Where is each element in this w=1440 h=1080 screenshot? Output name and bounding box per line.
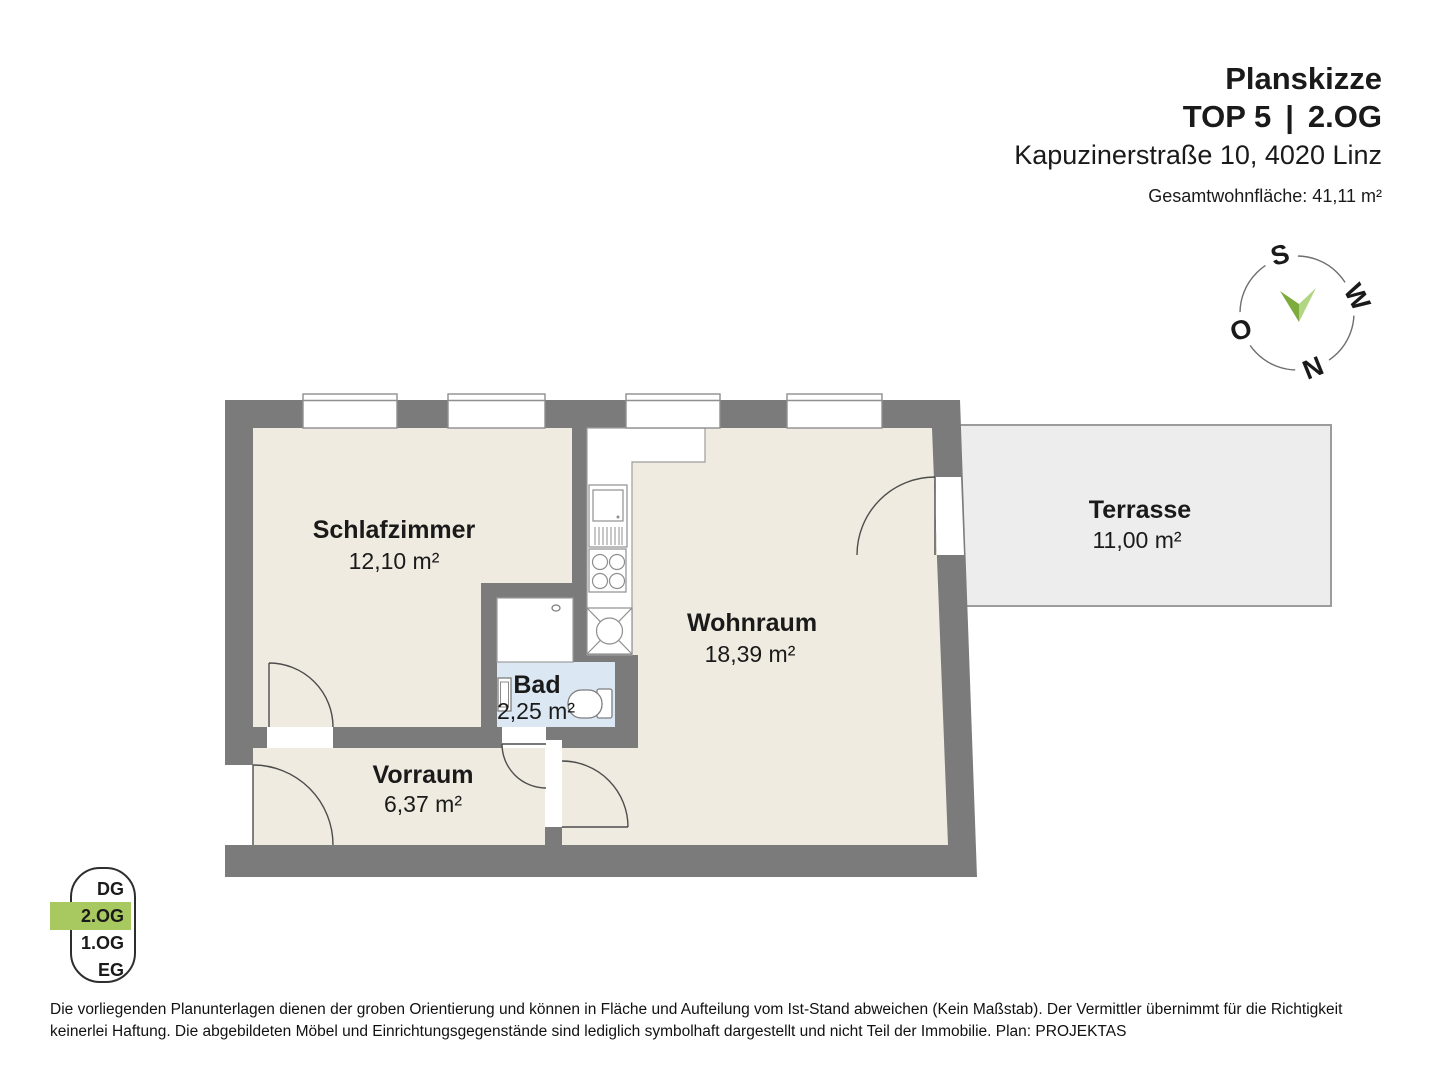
vorraum-area: 6,37 m² (384, 791, 462, 817)
sink-icon (587, 608, 632, 654)
vorraum-label: Vorraum (373, 761, 474, 789)
terrasse-label: Terrasse (1089, 496, 1191, 524)
shower-drain-icon (552, 605, 560, 611)
floor-option-1og[interactable]: 1.OG (50, 930, 124, 957)
bad-label: Bad (513, 671, 560, 699)
disclaimer-text: Die vorliegenden Planunterlagen dienen d… (50, 999, 1400, 1043)
floorplan-page: Planskizze TOP 5 | 2.OG Kapuzinerstraße … (0, 0, 1440, 1080)
window-icon (626, 394, 720, 428)
kitchen-appliances (587, 485, 632, 654)
floor-option-eg[interactable]: EG (50, 957, 124, 984)
schlafzimmer-label: Schlafzimmer (313, 516, 476, 544)
floor-plan: Schlafzimmer 12,10 m² Wohnraum 18,39 m² … (0, 0, 1440, 1080)
window-icon (787, 394, 882, 428)
floor-selector: DG 2.OG 1.OG EG (50, 865, 140, 985)
shower (497, 598, 573, 662)
schlafzimmer-area: 12,10 m² (349, 548, 440, 574)
window-icon (303, 394, 397, 428)
floor-option-dg[interactable]: DG (50, 876, 124, 903)
bad-area: 2,25 m² (497, 698, 575, 724)
wohnraum-area: 18,39 m² (705, 641, 796, 667)
floor-option-2og[interactable]: 2.OG (50, 903, 124, 930)
wohnraum-label: Wohnraum (687, 609, 817, 637)
terrasse-area: 11,00 m² (1092, 527, 1181, 553)
window-icon (448, 394, 545, 428)
